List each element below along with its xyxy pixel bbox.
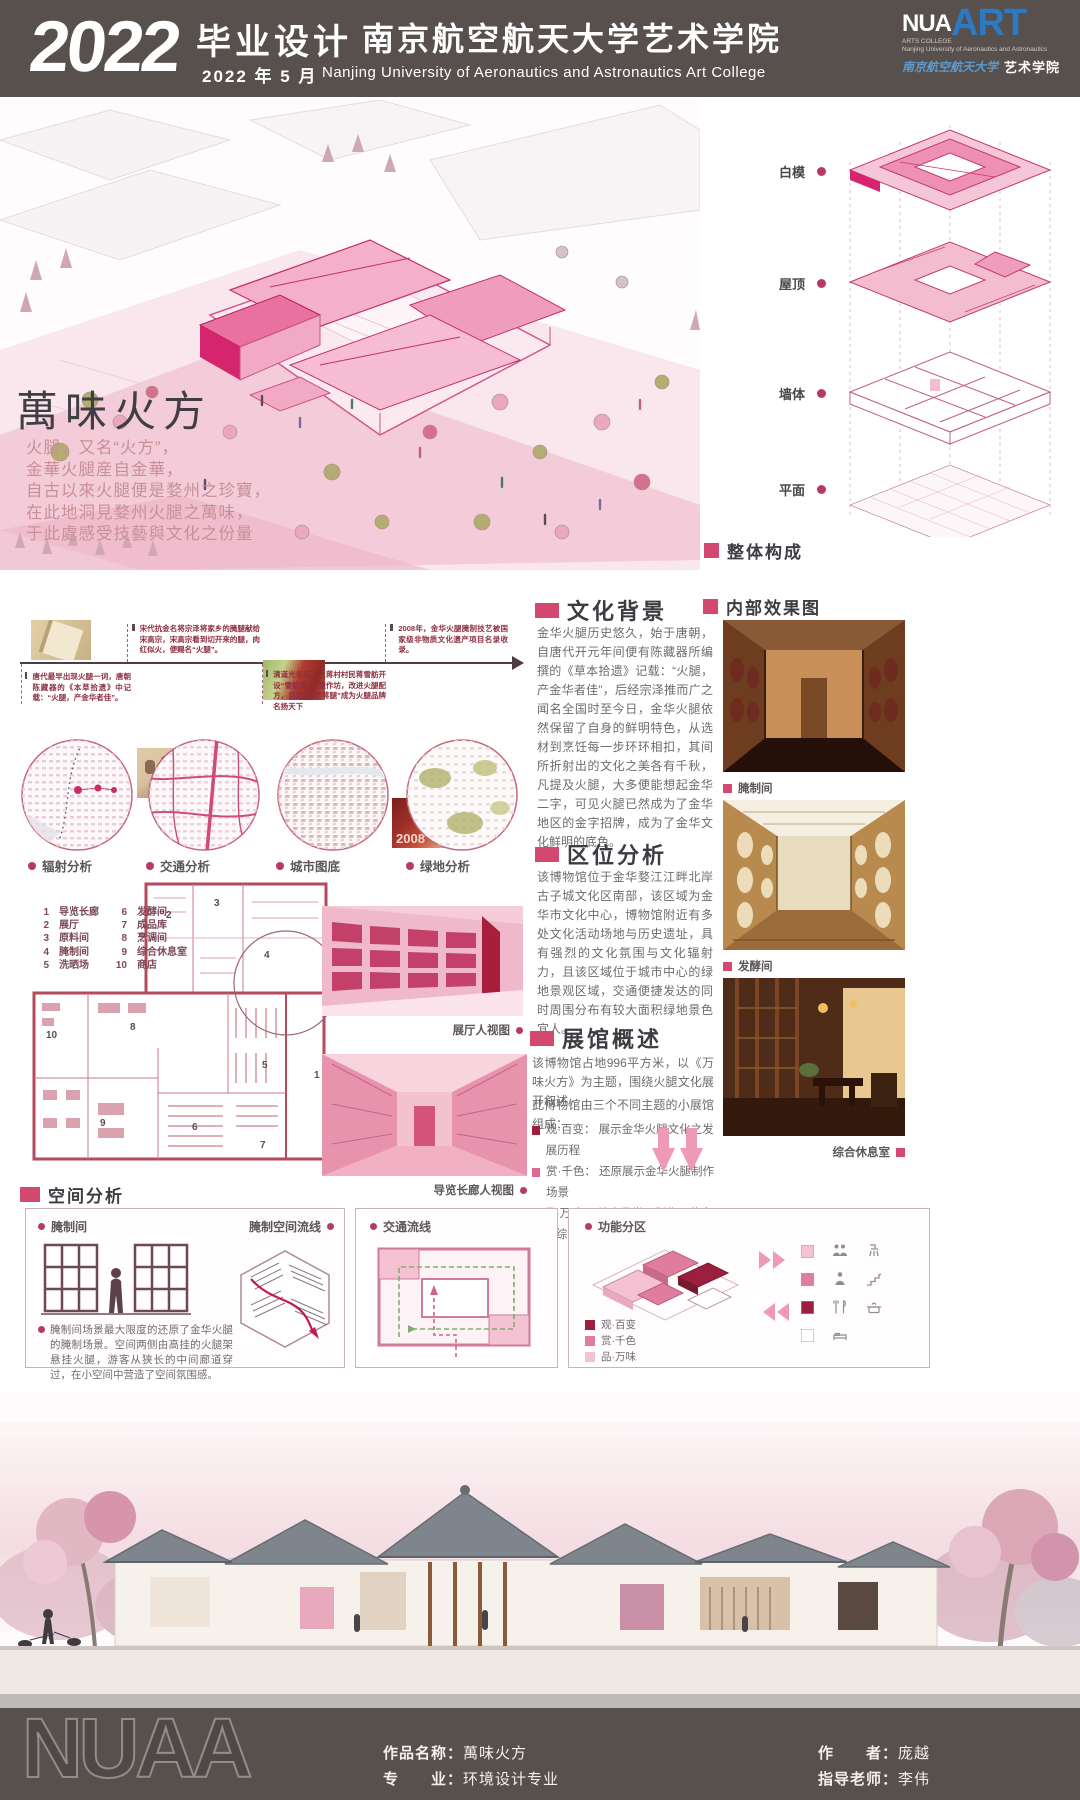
bullet-dot-icon (38, 1223, 45, 1230)
heading-square-icon (703, 599, 718, 614)
room-number: 7 (260, 1140, 266, 1151)
header-bar: 2022 毕业设计 2022 年 5 月 南京航空航天大学艺术学院 Nanjin… (0, 0, 1080, 97)
room-number: 5 (262, 1060, 268, 1071)
legend-item: 7成品库 (113, 919, 187, 932)
interior-photo-label: 综合休息室 (723, 1144, 905, 1160)
legend-item: 6发酵间 (113, 906, 187, 919)
axon-label: 白模 (735, 162, 805, 181)
project-title: 萬味火方 (16, 378, 212, 439)
axon-label: 屋顶 (735, 274, 805, 293)
zone-square-icon (585, 1320, 595, 1330)
zone-legend-item: 赏·千色 (585, 1333, 636, 1349)
timeline-event: 清道光年间，上蒋村村民蒋雪舫开设“雪舫蒋”火腿作坊，改进火腿配方，自此“雪舫蒋腿… (266, 670, 386, 712)
shower-icon (866, 1243, 882, 1259)
circle-label-radiation: 辐射分析 (28, 856, 92, 875)
axon-label-row: 平面 (735, 480, 826, 499)
bullet-dot-icon (406, 862, 414, 870)
poem-line: 于此處感受技藝與文化之份量 (26, 524, 271, 546)
axon-caption: 整体构成 (704, 538, 803, 563)
legend-item: 1导览长廊 (35, 906, 99, 919)
zone-legend: 观·百变 赏·千色 品·万味 (585, 1317, 636, 1365)
zone-icon-grid (801, 1237, 882, 1349)
hall-view-label: 展厅人视图 (322, 1022, 523, 1038)
section-overview-heading: 展馆概述 (530, 1022, 662, 1054)
header-school-cn: 南京航空航天大学艺术学院 (362, 14, 782, 60)
swatch-square-icon (801, 1273, 814, 1286)
event-square-icon (390, 624, 393, 631)
header-school-en: Nanjing University of Aeronautics and As… (322, 64, 766, 81)
label-square-icon (723, 784, 732, 793)
circle-label-traffic: 交通分析 (146, 856, 210, 875)
heading-square-icon (535, 603, 559, 618)
work-name-field: 作品名称：萬味火方 (383, 1742, 527, 1763)
swatch-square-icon (801, 1329, 814, 1342)
axon-label-row: 墙体 (735, 384, 826, 403)
bullet-dot-icon (520, 1187, 527, 1194)
stairs-icon (866, 1271, 882, 1287)
axon-label-row: 白模 (735, 162, 826, 181)
legend-item: 2展厅 (35, 919, 99, 932)
timeline-connector (262, 664, 263, 704)
interior-photo-label: 发酵间 (723, 958, 773, 974)
corridor-view-label: 导览长廊人视图 (322, 1182, 527, 1198)
room-number: 10 (46, 1030, 58, 1041)
axon-label-row: 屋顶 (735, 274, 826, 293)
major-field: 专 业：环境设计专业 (383, 1768, 559, 1789)
logo-art-text: ART (951, 8, 1026, 38)
city-figure-ground-map (276, 738, 390, 852)
utensils-icon (832, 1299, 848, 1315)
curing-flow-axon (231, 1235, 339, 1363)
event-square-icon (266, 670, 268, 677)
heading-square-icon (20, 1187, 40, 1202)
plan-legend: 1导览长廊 2展厅 3原料间 4腌制间 5洗晒场 6发酵间 7成品库 8烹调间 … (35, 906, 187, 972)
axon-label: 墙体 (735, 384, 805, 403)
logo-script-cn: 南京航空航天大学 (902, 58, 998, 75)
layer-dot-icon (817, 485, 826, 494)
advisor-field: 指导老师：李伟 (818, 1768, 930, 1789)
legend-item: 3原料间 (35, 932, 99, 945)
heading-square-icon (704, 543, 719, 558)
swatch-square-icon (801, 1245, 814, 1258)
school-logo: NUA ART ARTS COLLEGE Nanjing University … (902, 8, 1070, 90)
bullet-dot-icon (146, 862, 154, 870)
section-location-heading: 区位分析 (535, 838, 667, 870)
header-title-cn: 毕业设计 (196, 14, 352, 65)
layer-dot-icon (817, 167, 826, 176)
exploded-axon-diagram (845, 117, 1055, 537)
location-body: 该博物馆位于金华婺江江畔北岸古子城文化区南部，该区域为金华市文化中心，博物馆附近… (537, 868, 713, 1039)
author-field: 作 者：庞越 (818, 1742, 930, 1763)
legend-item: 5洗晒场 (35, 959, 99, 972)
interior-photo-curing-room (723, 620, 905, 772)
interior-photo-lounge (723, 978, 905, 1136)
room-number: 3 (214, 898, 220, 909)
poster: 2022 毕业设计 2022 年 5 月 南京航空航天大学艺术学院 Nanjin… (0, 0, 1080, 1800)
curing-description: 腌制间场景最大限度的还原了金华火腿的腌制场景。空间两侧由高挂的火腿架悬挂火腿，游… (38, 1323, 233, 1383)
bullet-square-icon (532, 1168, 540, 1177)
timeline-event: 唐代最早出现火腿一词，唐朝陈藏器的《本草拾遗》中记载：“火腿，产金华者佳”。 (25, 672, 131, 704)
greenspace-analysis-map (405, 738, 519, 852)
legend-item: 10商店 (113, 959, 187, 972)
right-arrow-icon (757, 1249, 791, 1271)
traffic-flow-panel: 交通流线 (355, 1208, 558, 1368)
timeline-event: 宋代抗金名将宗泽将家乡的腌腿献给宋高宗，宋高宗看到切开来的腿，肉红似火，便赐名“… (132, 624, 260, 656)
poem-line: 在此地洞見婺州火腿之萬味， (26, 503, 271, 525)
exhibition-hall-view (322, 906, 523, 1016)
curing-flow-label: 腌制空间流线 (249, 1218, 334, 1235)
traffic-flow-label: 交通流线 (370, 1218, 431, 1235)
section-space-heading: 空间分析 (20, 1182, 124, 1207)
left-arrow-icon (757, 1301, 791, 1323)
event-square-icon (132, 624, 135, 631)
room-number: 1 (314, 1070, 320, 1081)
timeline-event: 2008年，金华火腿腌制技艺被国家级非物质文化遗产项目名录收录。 (390, 624, 508, 656)
bullet-dot-icon (370, 1223, 377, 1230)
curing-space-panel: 腌制间 腌制空间流线 (25, 1208, 345, 1368)
bullet-dot-icon (28, 862, 36, 870)
poem-line: 火腿，又名“火方”， (26, 438, 271, 460)
zoning-axon-blocks (583, 1233, 748, 1325)
logo-subtitle-2: Nanjing University of Aeronautics and As… (902, 46, 1070, 54)
interior-photo-label: 腌制间 (723, 780, 773, 796)
timeline-connector (21, 664, 22, 704)
legend-item: 9综合休息室 (113, 946, 187, 959)
heading-square-icon (530, 1031, 554, 1046)
gallery-corridor-view (322, 1054, 527, 1176)
layer-dot-icon (817, 279, 826, 288)
bed-icon (832, 1327, 848, 1343)
section-culture-heading: 文化背景 (535, 594, 667, 626)
legend-item: 4腌制间 (35, 946, 99, 959)
poem-line: 金華火腿産自金華， (26, 460, 271, 482)
heading-square-icon (535, 847, 559, 862)
label-square-icon (723, 962, 732, 971)
bullet-dot-icon (327, 1223, 334, 1230)
project-poem: 火腿，又名“火方”， 金華火腿産自金華， 自古以來火腿便是婺州之珍寶， 在此地洞… (26, 438, 271, 546)
traffic-flow-diagram (364, 1239, 549, 1361)
room-number: 8 (130, 1022, 136, 1033)
logo-college-cn: 艺术学院 (1004, 57, 1060, 76)
circle-label-figure-ground: 城市图底 (276, 856, 340, 875)
timeline-arrowhead-icon (512, 656, 524, 670)
bullet-square-icon (532, 1126, 540, 1135)
room-number: 4 (264, 950, 270, 961)
curing-room-label: 腌制间 (38, 1218, 87, 1235)
circle-label-greenspace: 绿地分析 (406, 856, 470, 875)
interior-photo-fermentation-room (723, 800, 905, 950)
timeline-photo-document (31, 620, 91, 660)
zone-square-icon (585, 1352, 595, 1362)
poem-line: 自古以來火腿便是婺州之珍寶， (26, 481, 271, 503)
bullet-dot-icon (516, 1027, 523, 1034)
culture-body: 金华火腿历史悠久，始于唐朝，自唐代开元年间便有陈藏器所编撰的《草本拾遗》记载：“… (537, 624, 713, 852)
legend-item: 8烹调间 (113, 932, 187, 945)
pot-icon (866, 1299, 882, 1315)
event-square-icon (25, 672, 27, 679)
room-number: 6 (192, 1122, 198, 1133)
timeline-connector (385, 624, 386, 662)
person-icon (832, 1271, 848, 1287)
zone-square-icon (585, 1336, 595, 1346)
header-date: 2022 年 5 月 (202, 62, 317, 87)
section-interior-heading: 内部效果图 (703, 594, 821, 619)
swatch-square-icon (801, 1301, 814, 1314)
ham-rack-elevation (41, 1239, 191, 1319)
layer-dot-icon (817, 389, 826, 398)
person-silhouette (109, 1268, 123, 1313)
bullet-dot-icon (38, 1326, 45, 1333)
building-section-illustration (0, 1392, 1080, 1694)
timeline-connector (127, 624, 128, 662)
logo-nua-text: NUA (902, 10, 951, 38)
radiation-analysis-map (20, 738, 134, 852)
traffic-analysis-map (147, 738, 261, 852)
bullet-dot-icon (276, 862, 284, 870)
room-number: 9 (100, 1118, 106, 1129)
nuaa-logo: NUAA (22, 1700, 249, 1797)
history-timeline: 2008 宋代抗金名将宗泽将家乡的腌腿献给宋高宗，宋高宗看到切开来的腿，肉红似火… (0, 0, 62, 180)
down-arrows-icon (652, 1128, 704, 1174)
zone-legend-item: 观·百变 (585, 1317, 636, 1333)
axon-label: 平面 (735, 480, 805, 499)
bullet-dot-icon (585, 1223, 592, 1230)
footer-bar: NUAA 作品名称：萬味火方 专 业：环境设计专业 作 者：庞越 指导老师：李伟 (0, 1708, 1080, 1800)
label-square-icon (896, 1148, 905, 1157)
zoning-panel: 功能分区 观·百变 赏·千色 品·万味 (568, 1208, 930, 1368)
zone-legend-item: 品·万味 (585, 1349, 636, 1365)
people-icon (832, 1243, 848, 1259)
